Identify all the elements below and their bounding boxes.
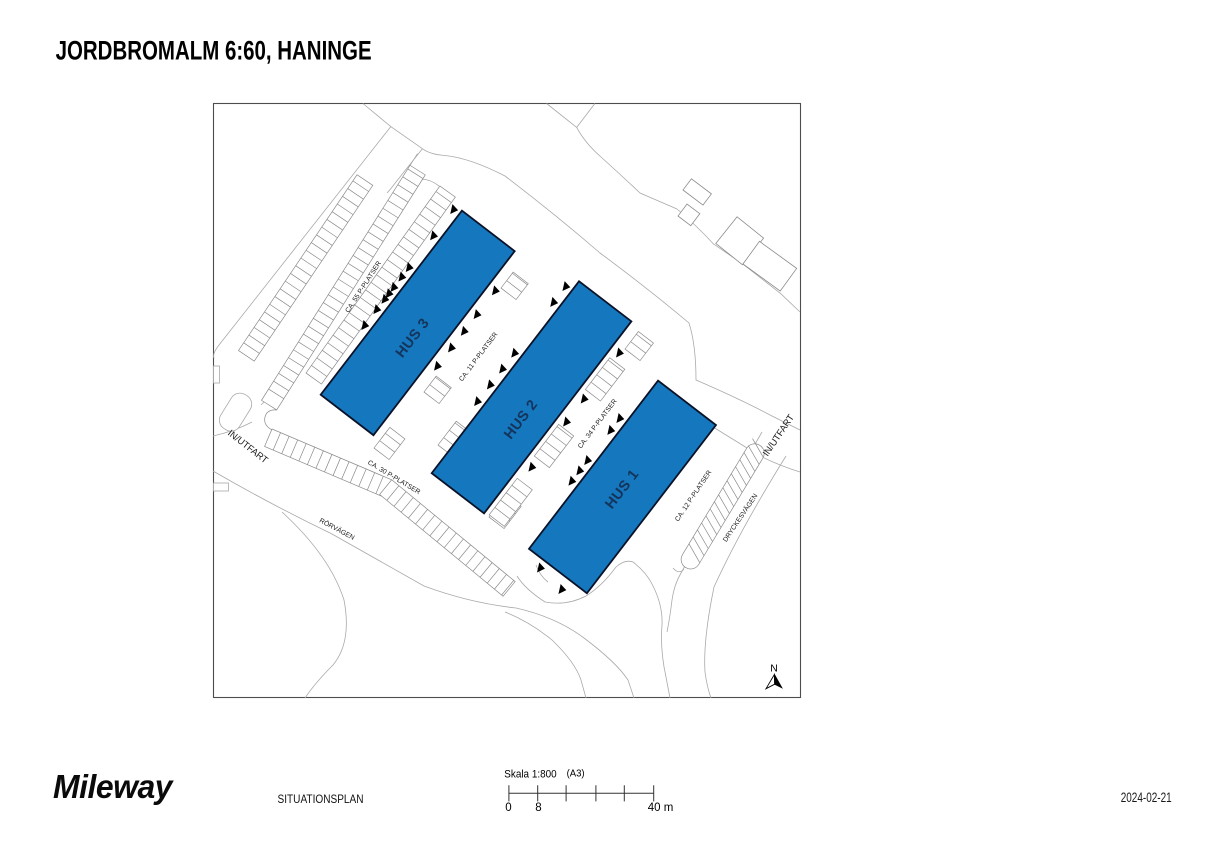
svg-text:8: 8 [535, 802, 541, 814]
svg-text:0: 0 [505, 802, 511, 814]
svg-text:SITUATIONSPLAN: SITUATIONSPLAN [278, 792, 364, 806]
svg-text:N: N [770, 663, 778, 675]
svg-text:2024-02-21: 2024-02-21 [1121, 790, 1172, 805]
svg-text:Mileway: Mileway [53, 768, 174, 805]
svg-text:(A3): (A3) [567, 768, 585, 780]
svg-text:JORDBROMALM 6:60, HANINGE: JORDBROMALM 6:60, HANINGE [56, 35, 372, 65]
svg-text:40 m: 40 m [648, 802, 674, 814]
svg-text:Skala 1:800: Skala 1:800 [504, 769, 556, 781]
